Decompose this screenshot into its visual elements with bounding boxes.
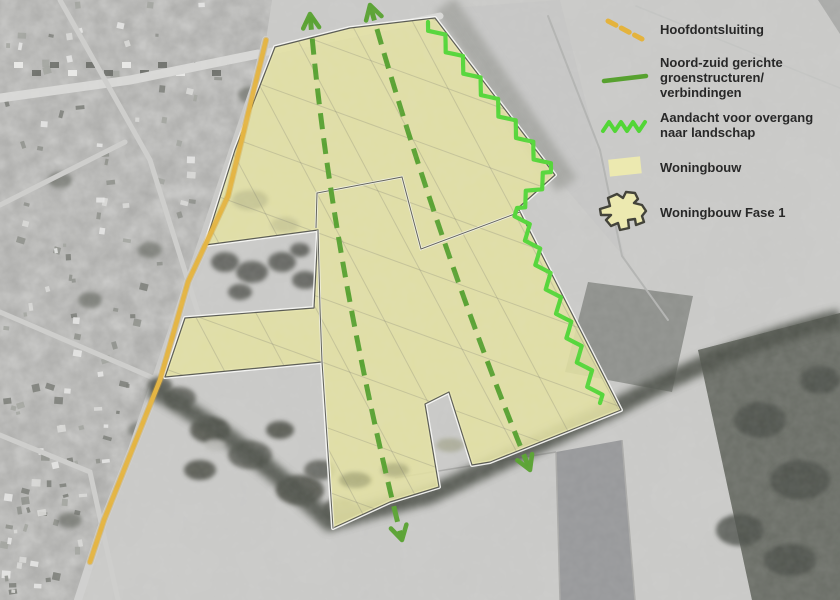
legend-item-overgang-landschap: Aandacht voor overgang naar landschap [596,110,840,140]
legend-label: Woningbouw Fase 1 [660,205,785,220]
legend-item-woningbouw: Woningbouw [596,155,840,179]
main-access-road-icon [596,14,654,44]
landscape-transition-zigzag-icon [596,112,654,138]
legend-label: Woningbouw [660,160,741,175]
legend-item-hoofdontsluiting: Hoofdontsluiting [596,14,840,44]
legend-label: naar landschap [660,125,813,140]
legend-label: groenstructuren/ [660,70,783,85]
legend-label: Aandacht voor overgang [660,110,813,125]
housing-area-swatch-icon [596,155,654,179]
legend-label: verbindingen [660,85,783,100]
map-legend: Hoofdontsluiting Noord-zuid gerichte gro… [596,14,840,235]
legend-item-woningbouw-fase-1: Woningbouw Fase 1 [596,189,840,235]
housing-phase1-puzzle-icon [596,189,654,235]
legend-label: Hoofdontsluiting [660,22,764,37]
green-structure-line-icon [596,68,654,88]
legend-label: Noord-zuid gerichte [660,55,783,70]
site-plan-page: Hoofdontsluiting Noord-zuid gerichte gro… [0,0,840,600]
legend-item-groenstructuren: Noord-zuid gerichte groenstructuren/ ver… [596,55,840,100]
